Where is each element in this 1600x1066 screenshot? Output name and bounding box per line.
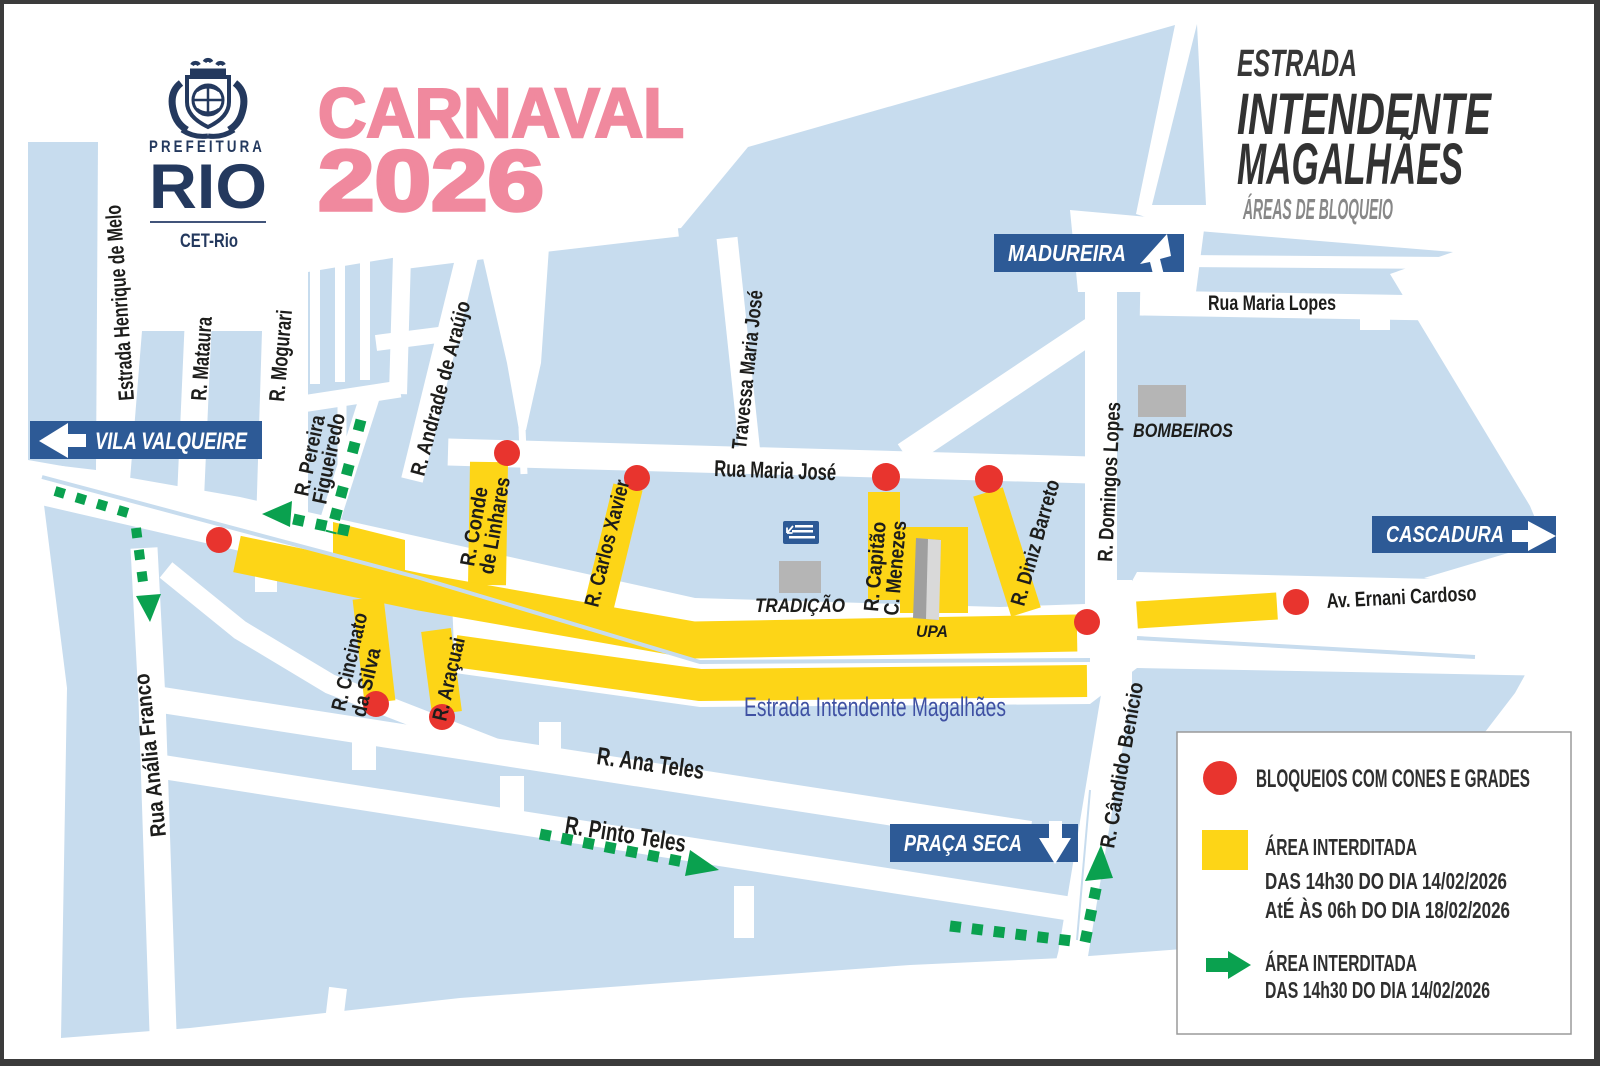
svg-text:MAGALHÃES: MAGALHÃES — [1237, 132, 1463, 197]
svg-text:BOMBEIROS: BOMBEIROS — [1133, 421, 1233, 442]
svg-text:ÁREA INTERDITADA: ÁREA INTERDITADA — [1265, 833, 1417, 860]
svg-text:Estrada Intendente Magalhães: Estrada Intendente Magalhães — [744, 692, 1006, 722]
svg-text:2026: 2026 — [318, 134, 544, 229]
svg-text:ESTRADA: ESTRADA — [1237, 43, 1357, 85]
svg-text:ÁREAS DE BLOQUEIO: ÁREAS DE BLOQUEIO — [1243, 193, 1394, 226]
svg-text:RIO: RIO — [149, 152, 267, 222]
svg-text:BLOQUEIOS COM CONES E GRADES: BLOQUEIOS COM CONES E GRADES — [1256, 765, 1530, 793]
svg-text:DAS 14h30 DO DIA 14/02/2026: DAS 14h30 DO DIA 14/02/2026 — [1265, 977, 1490, 1003]
svg-text:ÁREA INTERDITADA: ÁREA INTERDITADA — [1265, 949, 1417, 976]
svg-text:UPA: UPA — [916, 622, 948, 641]
svg-text:MADUREIRA: MADUREIRA — [1008, 240, 1126, 266]
svg-text:Rua Maria José: Rua Maria José — [714, 455, 837, 485]
svg-text:CASCADURA: CASCADURA — [1386, 521, 1504, 547]
svg-text:TRADIÇÃO: TRADIÇÃO — [755, 595, 845, 617]
svg-text:CET-Rio: CET-Rio — [180, 231, 238, 252]
svg-text:DAS 14h30 DO DIA 14/02/2026: DAS 14h30 DO DIA 14/02/2026 — [1265, 868, 1507, 894]
svg-text:Rua Maria Lopes: Rua Maria Lopes — [1208, 292, 1336, 315]
svg-text:VILA VALQUEIRE: VILA VALQUEIRE — [95, 428, 248, 455]
svg-text:PRAÇA SECA: PRAÇA SECA — [904, 830, 1022, 856]
svg-text:AtÉ ÀS 06h DO DIA 18/02/2026: AtÉ ÀS 06h DO DIA 18/02/2026 — [1265, 896, 1510, 923]
